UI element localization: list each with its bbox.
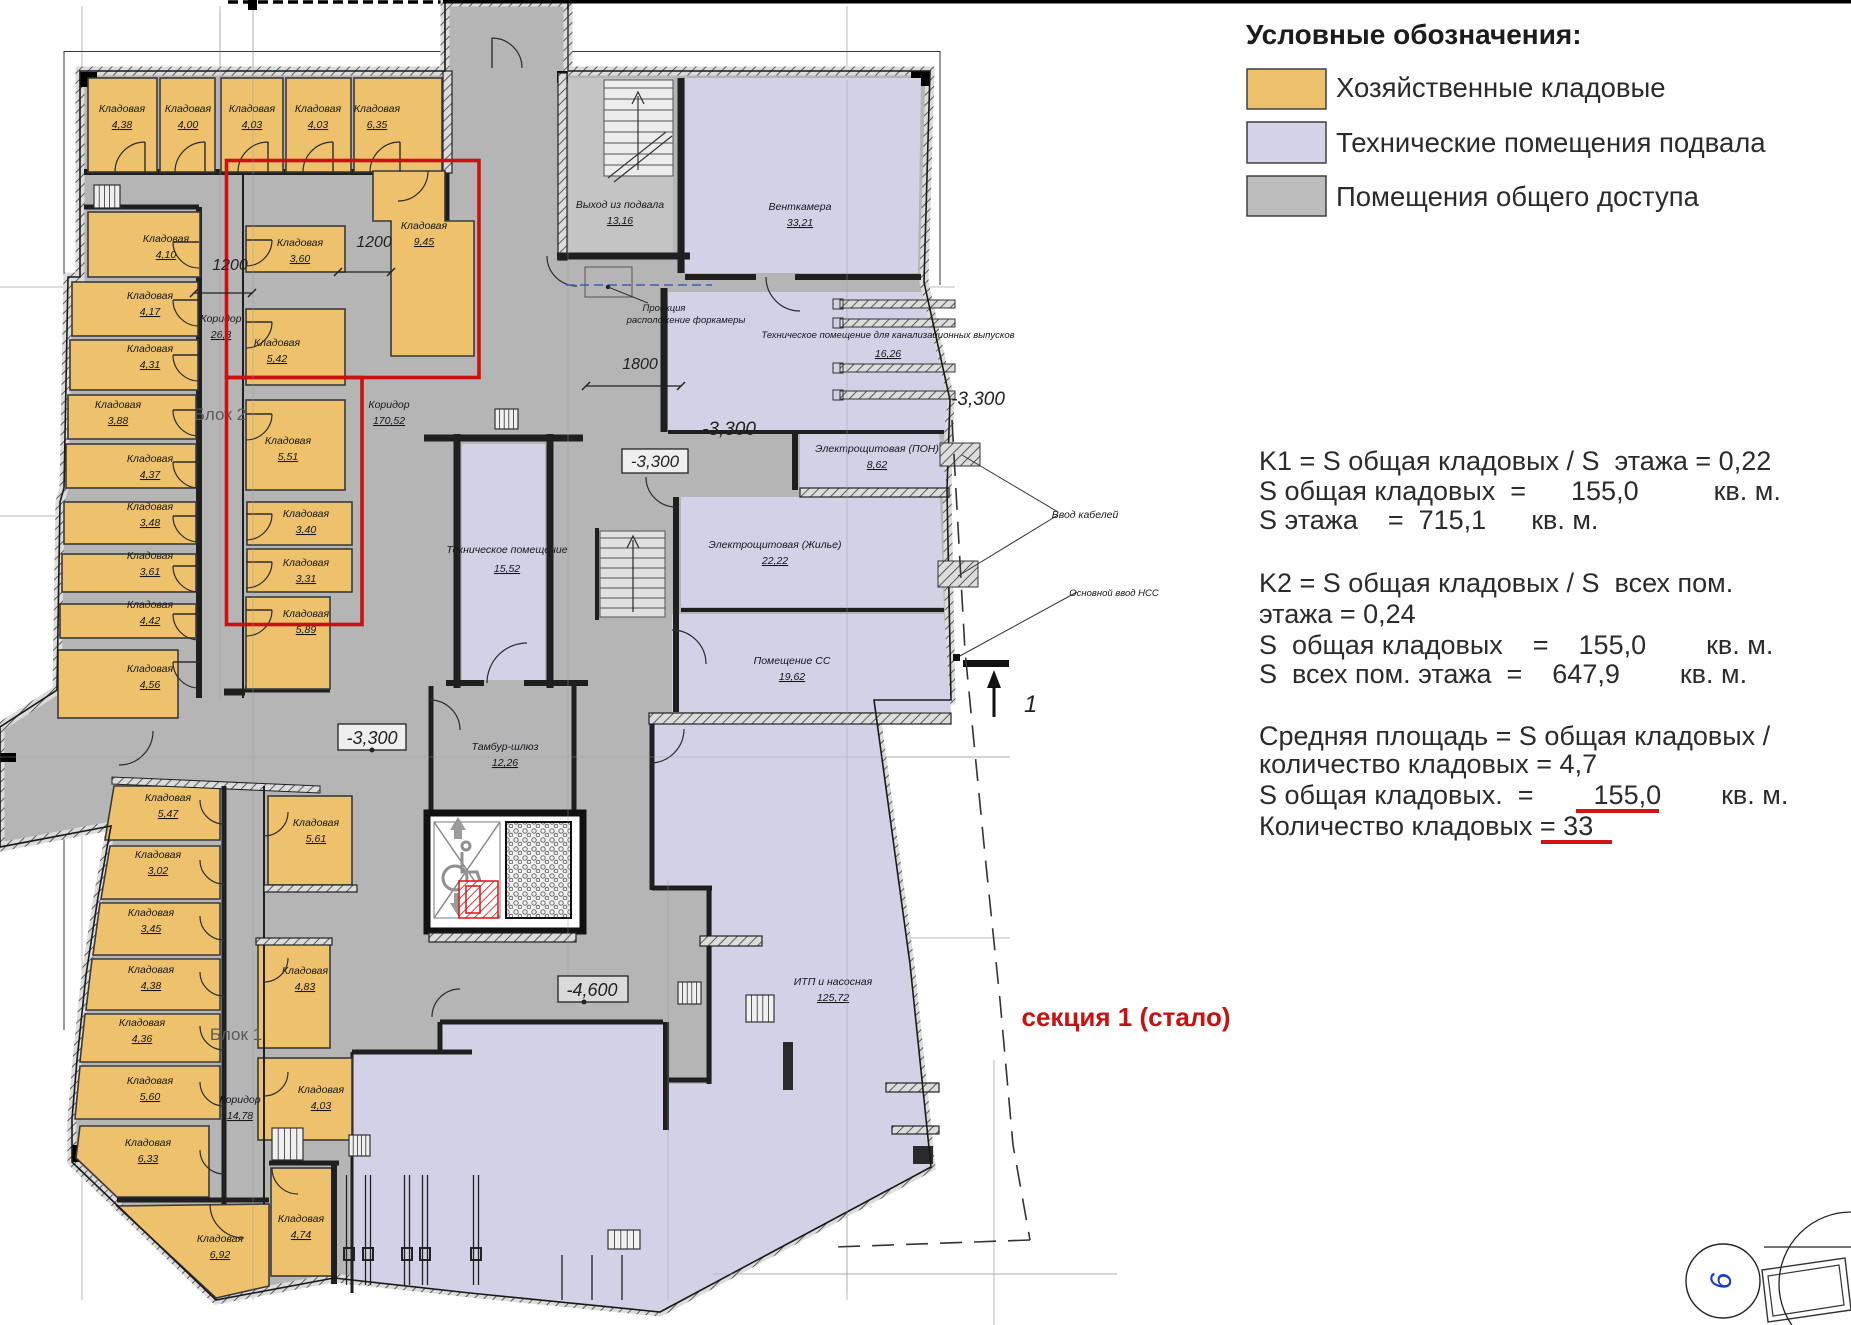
svg-text:5,42: 5,42 (267, 353, 288, 365)
svg-text:3,61: 3,61 (140, 566, 160, 578)
svg-text:4,17: 4,17 (140, 306, 162, 318)
svg-text:5,51: 5,51 (278, 451, 298, 463)
svg-text:S общая кладовых = 155,: S общая кладовых = 155,0 кв. м. (1259, 630, 1773, 660)
svg-text:S этажа = 715,1 кв. м: S этажа = 715,1 кв. м. (1259, 505, 1598, 535)
svg-text:-3,300: -3,300 (702, 419, 756, 440)
svg-text:170,52: 170,52 (373, 415, 405, 427)
svg-text:Основной ввод НСС: Основной ввод НСС (1069, 588, 1159, 599)
svg-text:Количество кладовых = 33: Количество кладовых = 33 (1259, 811, 1593, 841)
svg-text:12,26: 12,26 (492, 757, 518, 769)
svg-text:Кладовая: Кладовая (282, 965, 329, 977)
svg-text:1200: 1200 (212, 257, 248, 274)
svg-text:Проекция: Проекция (642, 303, 685, 314)
svg-text:3,60: 3,60 (290, 253, 311, 265)
svg-text:Ввод кабелей: Ввод кабелей (1052, 509, 1119, 521)
svg-text:Коридор: Коридор (219, 1094, 260, 1106)
svg-text:Электрощитовая (ПОН): Электрощитовая (ПОН) (815, 443, 939, 455)
svg-text:Коридор: Коридор (200, 313, 241, 325)
svg-text:S общая кладовых = 155,0: S общая кладовых = 155,0 кв. м. (1259, 476, 1781, 506)
svg-text:Кладовая: Кладовая (298, 1084, 345, 1096)
svg-text:-4,600: -4,600 (566, 980, 617, 1000)
svg-text:Кладовая: Кладовая (119, 1017, 166, 1029)
svg-text:Кладовая: Кладовая (165, 103, 212, 115)
svg-text:K1 = S общая кладовых / S эта: K1 = S общая кладовых / S этажа = 0,22 (1259, 446, 1771, 476)
svg-text:Кладовая: Кладовая (99, 103, 146, 115)
svg-text:6,35: 6,35 (367, 119, 388, 131)
svg-text:5,47: 5,47 (158, 808, 180, 820)
svg-text:Электрощитовая (Жилье): Электрощитовая (Жилье) (708, 539, 841, 551)
svg-text:Кладовая: Кладовая (401, 220, 448, 232)
svg-text:3,48: 3,48 (140, 517, 161, 529)
svg-text:6,33: 6,33 (138, 1153, 159, 1165)
svg-text:Средняя площадь = S общая клад: Средняя площадь = S общая кладовых / (1259, 721, 1771, 751)
svg-text:4,37: 4,37 (140, 469, 162, 481)
svg-text:Блок 1: Блок 1 (210, 1025, 262, 1044)
svg-text:6,92: 6,92 (210, 1249, 231, 1261)
svg-text:Кладовая: Кладовая (127, 550, 174, 562)
svg-text:Кладовая: Кладовая (125, 1137, 172, 1149)
svg-text:Кладовая: Кладовая (143, 233, 190, 245)
svg-text:этажа = 0,24: этажа = 0,24 (1259, 599, 1416, 629)
svg-text:Кладовая: Кладовая (127, 1075, 174, 1087)
svg-text:Кладовая: Кладовая (277, 237, 324, 249)
svg-text:5,60: 5,60 (140, 1091, 161, 1103)
svg-text:ИТП и насосная: ИТП и насосная (794, 976, 873, 988)
svg-text:3,31: 3,31 (296, 573, 316, 585)
svg-text:15,52: 15,52 (494, 563, 520, 575)
svg-text:Кладовая: Кладовая (128, 907, 175, 919)
svg-text:33,21: 33,21 (787, 217, 813, 229)
svg-text:Кладовая: Кладовая (127, 290, 174, 302)
svg-text:4,00: 4,00 (178, 119, 199, 131)
svg-text:4,38: 4,38 (141, 980, 162, 992)
svg-text:-3,300: -3,300 (631, 452, 680, 471)
svg-text:секция 1 (стало): секция 1 (стало) (1021, 1002, 1230, 1032)
svg-text:-3,300: -3,300 (346, 728, 397, 748)
svg-text:Условные обозначения:: Условные обозначения: (1246, 19, 1582, 50)
svg-text:16,26: 16,26 (875, 348, 901, 360)
svg-text:3,88: 3,88 (108, 415, 129, 427)
svg-text:количество кладовых = 4,7: количество кладовых = 4,7 (1259, 749, 1597, 779)
svg-text:Кладовая: Кладовая (293, 817, 340, 829)
svg-text:S общая кладовых. = 15: S общая кладовых. = 155,0 кв. м. (1259, 780, 1788, 810)
svg-text:5,61: 5,61 (306, 833, 326, 845)
svg-text:Кладовая: Кладовая (283, 557, 330, 569)
svg-text:Помещение СС: Помещение СС (754, 655, 831, 667)
svg-text:Венткамера: Венткамера (769, 201, 832, 213)
svg-text:Тамбур-шлюз: Тамбур-шлюз (472, 741, 539, 753)
svg-text:4,10: 4,10 (156, 249, 177, 261)
svg-text:Кладовая: Кладовая (127, 453, 174, 465)
svg-text:Кладовая: Кладовая (127, 599, 174, 611)
svg-text:6: 6 (1705, 1272, 1738, 1289)
svg-text:4,03: 4,03 (242, 119, 263, 131)
svg-text:Кладовая: Кладовая (278, 1213, 325, 1225)
svg-text:Кладовая: Кладовая (283, 508, 330, 520)
svg-text:Кладовая: Кладовая (127, 501, 174, 513)
svg-text:Кладовая: Кладовая (95, 399, 142, 411)
svg-text:4,83: 4,83 (295, 981, 316, 993)
svg-text:Техническое помещение для кана: Техническое помещение для канализационны… (761, 330, 1014, 341)
svg-text:8,62: 8,62 (867, 459, 888, 471)
svg-text:4,03: 4,03 (308, 119, 329, 131)
svg-text:14,78: 14,78 (227, 1110, 253, 1122)
svg-text:4,36: 4,36 (132, 1033, 153, 1045)
svg-text:расположение форкамеры: расположение форкамеры (626, 315, 746, 326)
svg-text:S всех пом. этажа = 647,9: S всех пом. этажа = 647,9 кв. м. (1259, 659, 1747, 689)
svg-text:13,16: 13,16 (607, 215, 633, 227)
svg-text:3,02: 3,02 (148, 865, 169, 877)
svg-text:4,42: 4,42 (140, 615, 161, 627)
svg-text:K2 = S общая кладовых / S все: K2 = S общая кладовых / S всех пом. (1259, 568, 1733, 598)
svg-text:Кладовая: Кладовая (127, 343, 174, 355)
svg-text:125,72: 125,72 (817, 992, 849, 1004)
svg-text:Кладовая: Кладовая (128, 964, 175, 976)
svg-text:Хозяйственные кладовые: Хозяйственные кладовые (1336, 72, 1666, 103)
svg-text:4,56: 4,56 (140, 679, 161, 691)
svg-text:1800: 1800 (622, 356, 658, 373)
svg-text:Кладовая: Кладовая (145, 792, 192, 804)
svg-text:3,40: 3,40 (296, 524, 317, 536)
svg-text:Помещения общего доступа: Помещения общего доступа (1336, 181, 1700, 212)
svg-text:-3,300: -3,300 (951, 389, 1005, 410)
svg-text:4,38: 4,38 (112, 119, 133, 131)
svg-text:Кладовая: Кладовая (135, 849, 182, 861)
svg-text:Кладовая: Кладовая (197, 1233, 244, 1245)
svg-text:19,62: 19,62 (779, 671, 805, 683)
svg-text:Выход из подвала: Выход из подвала (576, 199, 664, 211)
svg-text:Технические помещения подвала: Технические помещения подвала (1336, 127, 1766, 158)
svg-text:22,22: 22,22 (761, 555, 788, 567)
svg-text:3,45: 3,45 (141, 923, 162, 935)
svg-text:4,03: 4,03 (311, 1100, 332, 1112)
svg-text:Кладовая: Кладовая (295, 103, 342, 115)
svg-text:Кладовая: Кладовая (229, 103, 276, 115)
svg-text:1: 1 (1024, 691, 1037, 718)
svg-text:Кладовая: Кладовая (354, 103, 401, 115)
svg-text:Кладовая: Кладовая (265, 435, 312, 447)
svg-text:9,45: 9,45 (414, 236, 435, 248)
svg-text:4,74: 4,74 (291, 1229, 312, 1241)
svg-text:Кладовая: Кладовая (127, 663, 174, 675)
svg-text:Коридор: Коридор (368, 399, 409, 411)
svg-text:1200: 1200 (356, 234, 392, 251)
svg-text:4,31: 4,31 (140, 359, 160, 371)
svg-text:Кладовая: Кладовая (283, 608, 330, 620)
